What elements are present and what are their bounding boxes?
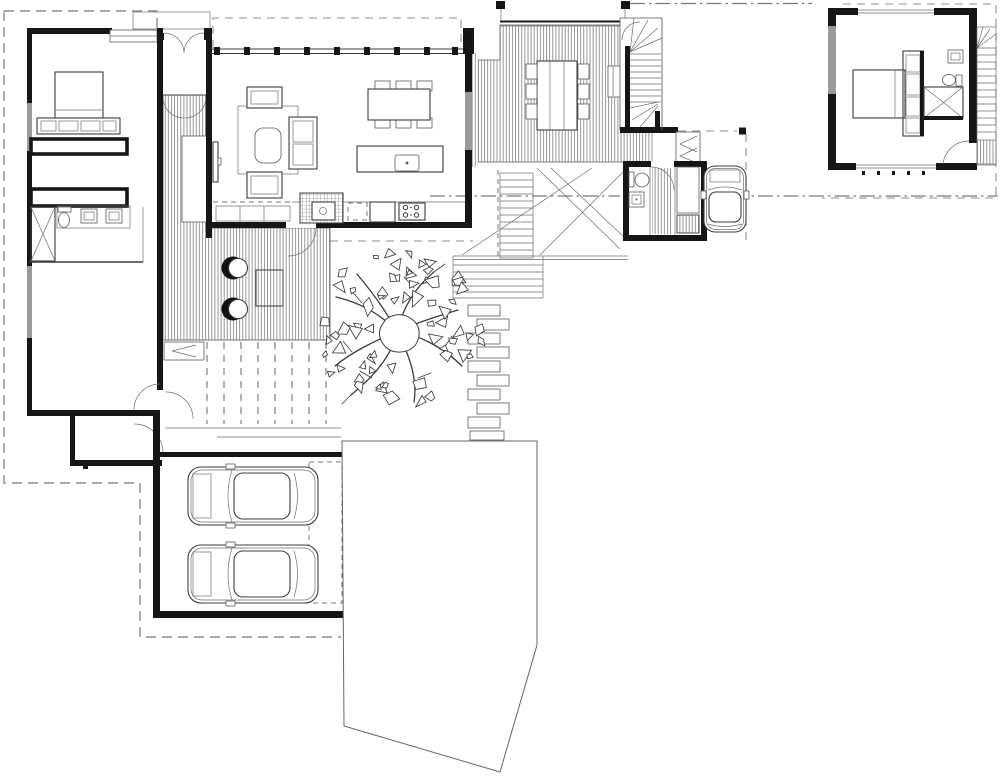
floor-plan-canvas [0,0,1000,779]
entry-door-swing [164,33,204,53]
east-wall [465,48,472,92]
leaf [359,361,365,369]
south-wall [27,410,160,416]
west-wall [153,410,160,618]
window [465,92,472,150]
leaf [390,273,397,282]
door-swing [943,141,969,164]
leaf [376,384,381,389]
south-wall [158,611,343,618]
leaf [439,306,451,319]
door-leaf [161,33,164,40]
basin [81,209,97,223]
boundary-top-left [4,11,157,30]
hall-floor [625,133,653,161]
hall-floor [652,168,673,234]
external-staircase [977,27,996,165]
living-wing [206,28,474,256]
leaf [338,268,347,277]
stepping-path [468,305,509,440]
leaf [467,354,473,359]
leaf [363,298,373,317]
toilet [635,173,649,187]
leaf [333,281,345,293]
tree-trunk [379,315,419,352]
leaf [320,317,329,326]
store-cupboard [677,167,699,213]
site-step-lines [165,428,341,437]
window-ticks [862,171,925,175]
post [621,1,630,9]
leaf [328,371,335,377]
lounge-setting [213,87,317,198]
leaf [440,351,453,362]
leaf [385,249,396,258]
leaf [427,321,435,326]
leaf [337,322,350,334]
sofa [247,87,282,108]
leaf [449,299,456,304]
toilet [943,75,956,86]
east-wall [465,150,472,228]
upper-deck [472,1,630,167]
garage [153,410,343,618]
leaf [406,251,412,258]
floor-plan-drawing [0,0,1000,779]
dining-setting [368,81,432,128]
leaf [333,341,346,353]
store-shelf [677,215,699,233]
main-staircase [620,18,678,133]
post [496,1,505,9]
leaf [413,290,424,307]
entry-canopy [133,12,210,29]
window [27,266,32,338]
leaf [364,324,373,333]
leaf [391,297,399,304]
outdoor-dining-table [537,61,577,130]
visitor-car [701,166,749,232]
landing [977,140,996,164]
leaf [428,300,436,306]
leaf [350,288,356,294]
garden-bench [164,342,204,360]
driveway-ramp [462,167,627,255]
leaf [424,259,436,267]
leaf [409,280,419,288]
stair-flight [500,173,533,258]
leaf [413,378,426,390]
basin [106,209,122,223]
leaf [323,351,328,358]
leaf [373,255,378,258]
leaf [390,258,401,270]
driveway-outline [342,441,537,772]
lounge-chair-cushion [229,259,248,278]
garden-steps [453,170,628,298]
dining-table [368,89,430,120]
deck-cabinet [182,136,208,222]
low-cabinet [216,206,290,221]
driveway [342,441,537,772]
north-wall [153,452,343,457]
leaf [337,365,345,372]
toilet-cistern [58,207,71,212]
leaf [453,325,465,337]
bed [853,70,905,118]
dresser [37,118,120,134]
stair-wall [625,46,630,130]
toilet-cistern [956,75,962,86]
leaf [449,338,458,344]
boundary-marker [739,128,746,135]
east-wall [157,28,163,390]
robe-joinery [31,139,127,154]
kitchen-sink [312,202,335,220]
bed [55,72,103,118]
roof-outline-living [213,18,461,48]
ensuite [28,206,143,262]
toilet-cistern [629,172,634,187]
upper-floor-unit [828,8,996,175]
coffee-table [255,128,281,163]
entry [157,28,211,53]
car [188,464,318,528]
toilet [59,213,70,228]
robe-joinery [31,189,127,206]
robe-wall [920,51,924,136]
dishwasher [348,203,367,220]
deck-strip [472,53,478,167]
car [188,542,318,606]
leaf [387,363,396,373]
door-swing [134,384,160,410]
cooktop [399,203,425,220]
tv-unit [213,142,218,182]
lounge-chair-cushion [229,300,248,319]
door-swing [166,392,193,419]
side-table [256,270,283,306]
basin [948,50,963,63]
window [828,26,836,94]
oven [370,202,395,222]
west-wall [206,28,212,238]
pergola [163,340,341,437]
leaf [425,391,435,401]
door-opening [651,161,674,167]
